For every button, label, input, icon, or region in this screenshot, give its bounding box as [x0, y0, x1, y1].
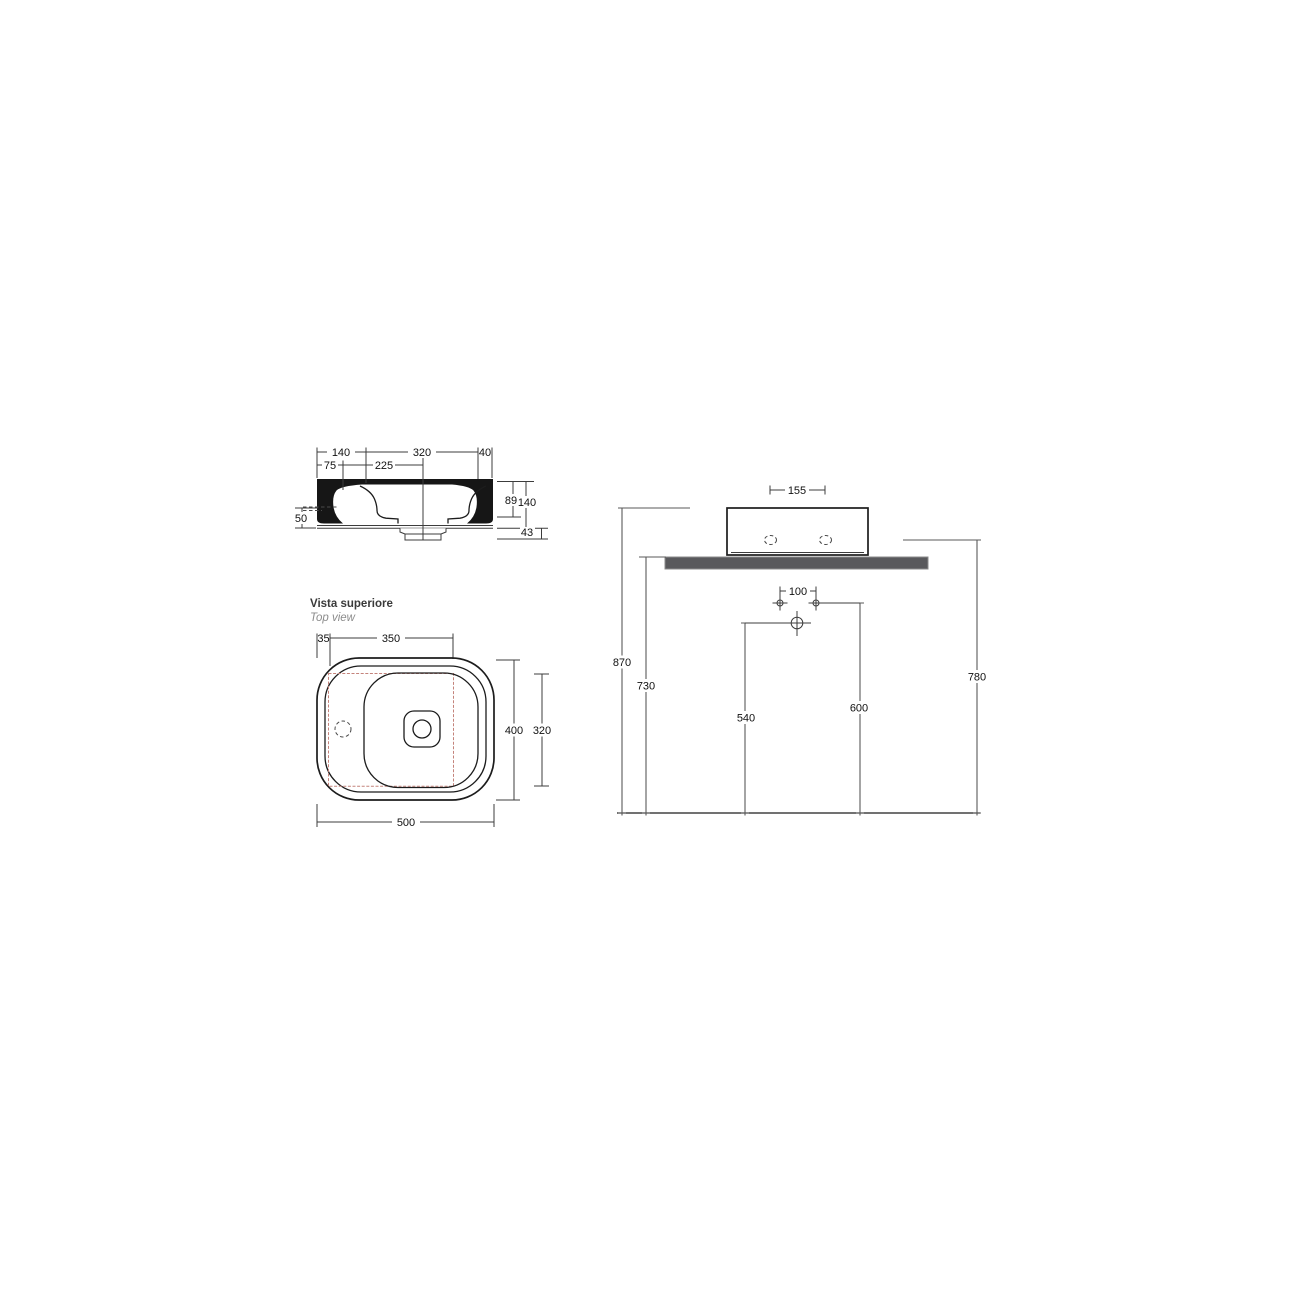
svg-text:100: 100	[789, 586, 807, 598]
svg-text:730: 730	[637, 681, 655, 693]
dim-label-780: 780	[964, 670, 990, 684]
dim-label-155: 155	[785, 484, 809, 497]
top-view-title: Vista superiore	[310, 598, 393, 610]
svg-text:75: 75	[324, 460, 336, 472]
svg-text:43: 43	[521, 527, 533, 539]
section-left-overflow-slit	[352, 494, 359, 513]
drain-recess	[404, 711, 440, 747]
section-bowl-left	[360, 486, 398, 524]
dim-label-500: 500	[392, 816, 420, 829]
svg-text:89: 89	[505, 495, 517, 507]
dim-label-100: 100	[786, 585, 810, 598]
svg-text:870: 870	[613, 657, 631, 669]
dim-label-35: 35	[317, 633, 329, 646]
spec-sheet-page: 140 320 40 75 225 50 89 140	[0, 0, 1300, 1300]
dim-label-75: 75	[322, 459, 338, 472]
countertop	[665, 557, 928, 569]
install-sink-body	[727, 508, 868, 555]
technical-drawing: 140 320 40 75 225 50 89 140	[0, 0, 1300, 1300]
dim-label-50: 50	[293, 512, 309, 525]
svg-text:320: 320	[533, 725, 551, 737]
dim-label-400: 400	[502, 724, 526, 738]
section-right-wall	[452, 484, 493, 524]
dim-label-540: 540	[733, 711, 759, 725]
svg-text:780: 780	[968, 672, 986, 684]
basin-bowl	[364, 673, 478, 788]
dim-label-350: 350	[377, 632, 405, 645]
dim-label-320-top: 320	[408, 446, 436, 459]
top-view: Vista superiore Top view 35 350 4	[310, 598, 554, 829]
section-view: 140 320 40 75 225 50 89 140	[293, 446, 548, 540]
dim-label-140-right: 140	[518, 496, 536, 509]
supply-crosshair-right	[809, 596, 861, 611]
faucet-hole	[335, 721, 351, 737]
dim-label-870: 870	[609, 656, 635, 670]
dim-label-320-right: 320	[530, 724, 554, 738]
svg-text:140: 140	[332, 447, 350, 459]
dim-label-225: 225	[373, 459, 395, 472]
drain-hole	[413, 720, 431, 738]
supply-crosshair-left	[773, 596, 788, 611]
dim-label-140-top: 140	[327, 446, 355, 459]
waste-crosshair	[745, 611, 811, 636]
section-right-overflow-slit	[452, 494, 459, 513]
svg-text:350: 350	[382, 633, 400, 645]
svg-text:400: 400	[505, 725, 523, 737]
svg-text:40: 40	[479, 447, 491, 459]
svg-text:155: 155	[788, 485, 806, 497]
svg-text:50: 50	[295, 513, 307, 525]
dim-label-600: 600	[846, 701, 872, 715]
svg-text:600: 600	[850, 703, 868, 715]
dim-label-89: 89	[504, 494, 519, 507]
fixing-hole-left	[765, 536, 777, 545]
svg-text:35: 35	[317, 633, 329, 645]
dim-label-730: 730	[633, 679, 659, 693]
svg-text:500: 500	[397, 817, 415, 829]
dim-label-43: 43	[520, 527, 535, 539]
top-view-subtitle: Top view	[310, 612, 356, 624]
installation-view: 155 100 870 730 540 600 780	[609, 484, 990, 816]
basin-reference-rect-red	[329, 674, 454, 787]
dim-label-40-top: 40	[479, 446, 492, 459]
section-base-lines	[317, 526, 493, 529]
basin-inner-rim	[325, 666, 486, 792]
svg-text:225: 225	[375, 460, 393, 472]
fixing-hole-right	[820, 536, 832, 545]
svg-text:320: 320	[413, 447, 431, 459]
svg-text:540: 540	[737, 713, 755, 725]
svg-text:140: 140	[518, 497, 536, 509]
